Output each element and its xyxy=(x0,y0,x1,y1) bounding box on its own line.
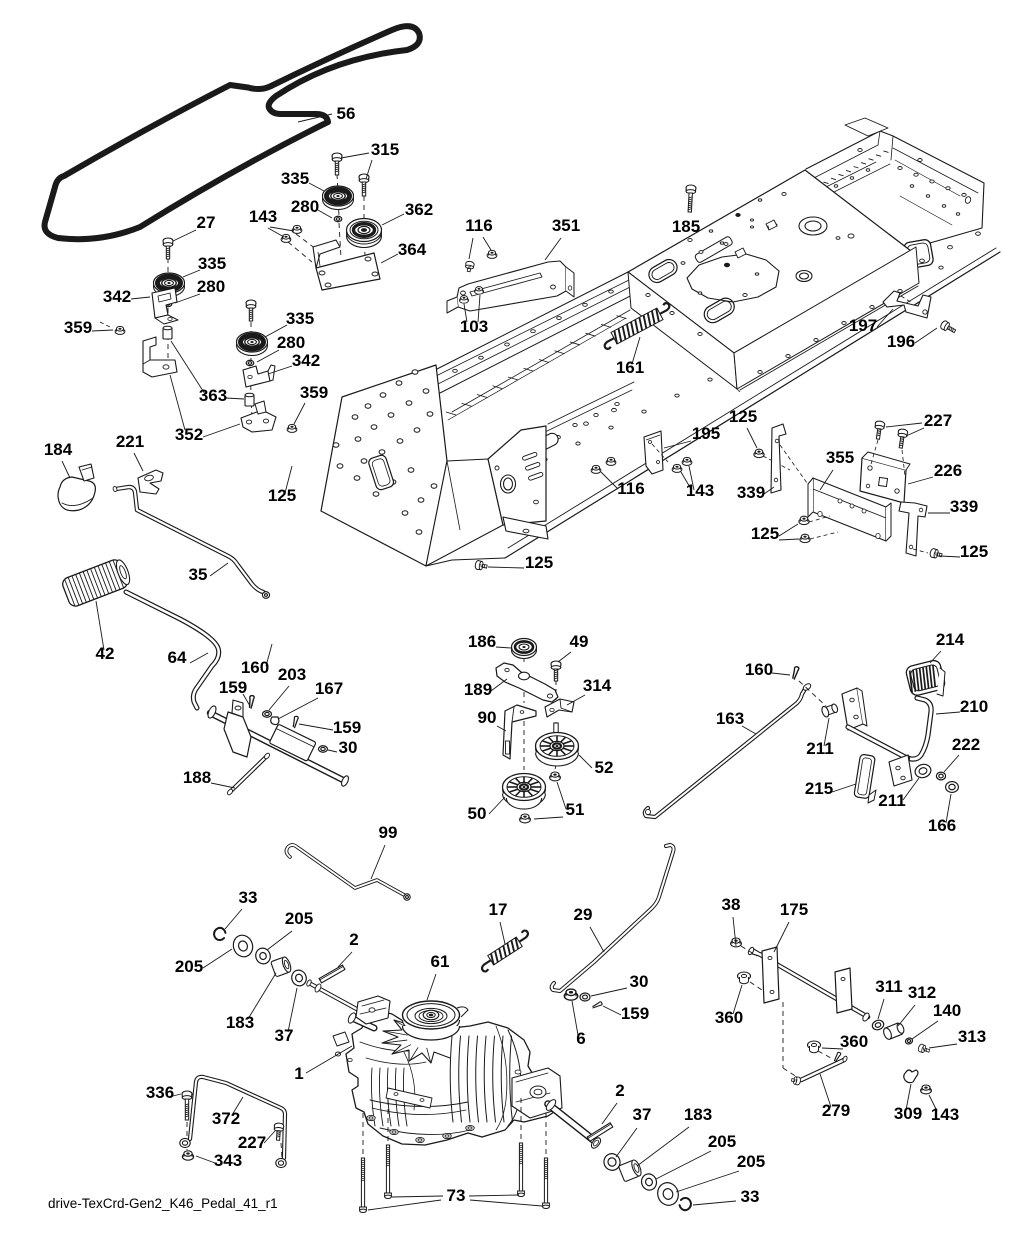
svg-text:61: 61 xyxy=(431,952,450,971)
svg-text:221: 221 xyxy=(116,432,144,451)
svg-text:125: 125 xyxy=(751,524,779,543)
svg-text:280: 280 xyxy=(197,277,225,296)
svg-text:312: 312 xyxy=(908,983,936,1002)
svg-text:185: 185 xyxy=(672,217,700,236)
svg-text:339: 339 xyxy=(950,497,978,516)
svg-text:196: 196 xyxy=(887,332,915,351)
svg-text:351: 351 xyxy=(552,216,580,235)
svg-text:27: 27 xyxy=(197,213,216,232)
svg-text:160: 160 xyxy=(745,660,773,679)
svg-text:314: 314 xyxy=(583,676,612,695)
svg-text:103: 103 xyxy=(460,317,488,336)
svg-text:125: 125 xyxy=(960,542,988,561)
svg-text:166: 166 xyxy=(928,816,956,835)
svg-text:163: 163 xyxy=(716,709,744,728)
svg-text:215: 215 xyxy=(805,779,833,798)
svg-text:183: 183 xyxy=(684,1105,712,1124)
svg-text:143: 143 xyxy=(249,207,277,226)
svg-text:342: 342 xyxy=(103,287,131,306)
svg-text:38: 38 xyxy=(722,895,741,914)
svg-text:227: 227 xyxy=(924,411,952,430)
svg-text:90: 90 xyxy=(478,708,497,727)
svg-text:167: 167 xyxy=(315,679,343,698)
svg-text:352: 352 xyxy=(175,425,203,444)
svg-text:116: 116 xyxy=(617,479,644,498)
svg-text:227: 227 xyxy=(238,1133,266,1152)
svg-text:214: 214 xyxy=(936,630,965,649)
svg-text:175: 175 xyxy=(780,900,808,919)
svg-text:339: 339 xyxy=(737,483,765,502)
svg-text:29: 29 xyxy=(574,905,593,924)
svg-text:161: 161 xyxy=(616,358,644,377)
svg-text:335: 335 xyxy=(286,309,314,328)
svg-text:56: 56 xyxy=(337,104,356,123)
svg-text:35: 35 xyxy=(189,565,208,584)
svg-text:359: 359 xyxy=(300,383,328,402)
svg-text:205: 205 xyxy=(737,1152,765,1171)
svg-text:222: 222 xyxy=(952,735,980,754)
svg-text:226: 226 xyxy=(934,461,962,480)
svg-text:42: 42 xyxy=(96,644,115,663)
svg-text:364: 364 xyxy=(398,240,427,259)
svg-text:140: 140 xyxy=(933,1001,961,1020)
svg-text:210: 210 xyxy=(960,697,988,716)
svg-text:372: 372 xyxy=(212,1109,240,1128)
svg-text:52: 52 xyxy=(595,758,614,777)
svg-text:336: 336 xyxy=(146,1083,174,1102)
svg-text:203: 203 xyxy=(278,665,306,684)
svg-text:205: 205 xyxy=(175,957,203,976)
svg-text:143: 143 xyxy=(686,481,714,500)
svg-text:335: 335 xyxy=(198,254,226,273)
svg-text:125: 125 xyxy=(729,407,757,426)
svg-text:37: 37 xyxy=(633,1105,652,1124)
svg-text:309: 309 xyxy=(894,1104,922,1123)
svg-text:2: 2 xyxy=(615,1081,624,1100)
svg-text:360: 360 xyxy=(715,1008,743,1027)
svg-text:37: 37 xyxy=(275,1026,294,1045)
svg-text:drive-TexCrd-Gen2_K46_Pedal_41: drive-TexCrd-Gen2_K46_Pedal_41_r1 xyxy=(48,1196,278,1211)
svg-text:183: 183 xyxy=(226,1013,254,1032)
svg-text:50: 50 xyxy=(468,804,487,823)
svg-text:1: 1 xyxy=(294,1064,303,1083)
svg-text:51: 51 xyxy=(566,800,585,819)
svg-text:64: 64 xyxy=(168,648,187,667)
svg-text:362: 362 xyxy=(405,200,433,219)
svg-text:280: 280 xyxy=(291,197,319,216)
svg-text:33: 33 xyxy=(741,1187,760,1206)
svg-text:125: 125 xyxy=(268,486,296,505)
svg-text:205: 205 xyxy=(708,1132,736,1151)
svg-text:73: 73 xyxy=(447,1186,466,1205)
svg-text:311: 311 xyxy=(875,977,902,996)
svg-text:116: 116 xyxy=(465,216,492,235)
svg-text:188: 188 xyxy=(183,768,211,787)
svg-text:205: 205 xyxy=(285,909,313,928)
svg-text:189: 189 xyxy=(464,680,492,699)
svg-text:359: 359 xyxy=(64,318,92,337)
svg-text:342: 342 xyxy=(292,351,320,370)
svg-text:197: 197 xyxy=(849,316,877,335)
svg-text:99: 99 xyxy=(379,823,398,842)
svg-text:159: 159 xyxy=(621,1004,649,1023)
svg-text:335: 335 xyxy=(281,169,309,188)
svg-text:211: 211 xyxy=(878,791,905,810)
svg-text:2: 2 xyxy=(349,930,358,949)
svg-text:363: 363 xyxy=(199,386,227,405)
svg-text:355: 355 xyxy=(826,448,854,467)
svg-text:313: 313 xyxy=(958,1027,986,1046)
svg-text:17: 17 xyxy=(489,900,508,919)
svg-text:211: 211 xyxy=(806,739,833,758)
svg-text:184: 184 xyxy=(44,440,73,459)
svg-text:33: 33 xyxy=(239,888,258,907)
svg-text:159: 159 xyxy=(219,678,247,697)
svg-text:30: 30 xyxy=(630,972,649,991)
svg-text:49: 49 xyxy=(570,632,589,651)
svg-text:343: 343 xyxy=(214,1151,242,1170)
svg-text:160: 160 xyxy=(241,658,269,677)
svg-text:125: 125 xyxy=(525,553,553,572)
svg-text:360: 360 xyxy=(840,1032,868,1051)
svg-text:186: 186 xyxy=(468,632,496,651)
svg-text:6: 6 xyxy=(576,1029,585,1048)
svg-text:280: 280 xyxy=(277,333,305,352)
svg-text:159: 159 xyxy=(333,718,361,737)
svg-text:195: 195 xyxy=(692,424,720,443)
svg-text:143: 143 xyxy=(931,1105,959,1124)
svg-text:315: 315 xyxy=(371,140,399,159)
svg-text:30: 30 xyxy=(339,738,358,757)
svg-text:279: 279 xyxy=(822,1101,850,1120)
